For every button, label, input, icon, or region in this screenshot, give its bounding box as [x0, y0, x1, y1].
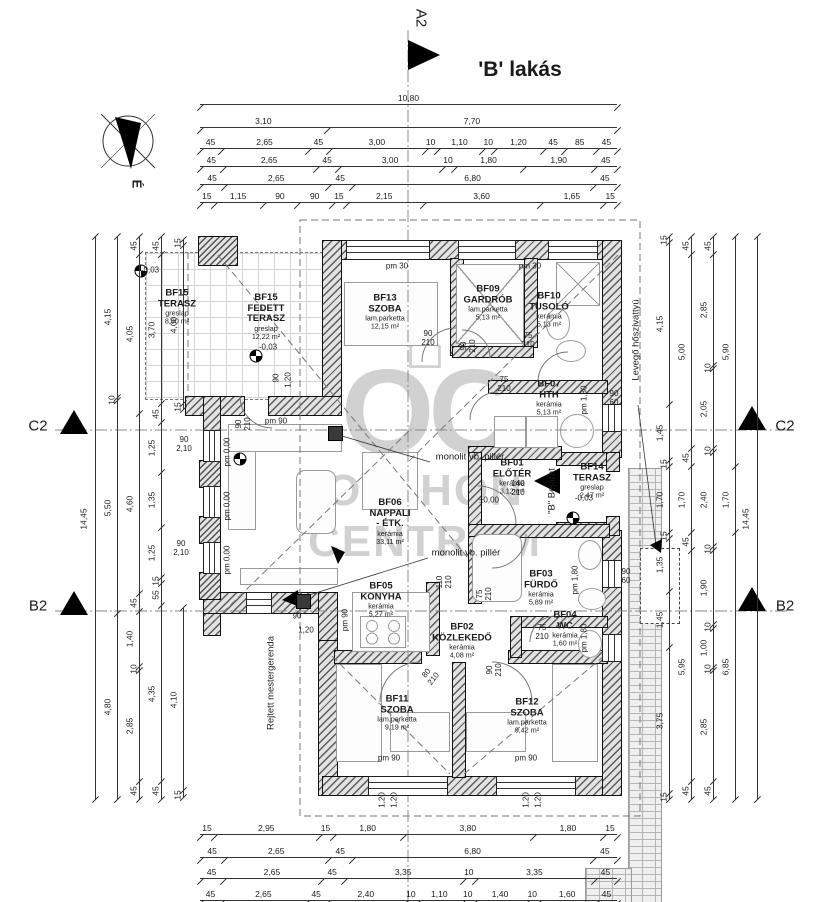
- room-label: BF04WCkerámia1,60 m²: [552, 610, 578, 647]
- dim-label: 2,65: [264, 867, 281, 877]
- room-label: BF13SZOBAlam.parketta12,15 m²: [365, 293, 405, 330]
- room-area: 1,60 m²: [552, 640, 578, 648]
- dim-label: 45: [601, 867, 610, 877]
- dim-segment: 1,45: [656, 592, 669, 649]
- dim-label: 7,70: [464, 116, 481, 126]
- annotation: 90 60: [610, 389, 619, 407]
- dimension-row: 3,107,70: [200, 115, 617, 128]
- dim-segment: 10: [463, 866, 476, 878]
- dim-label: 10: [426, 137, 435, 147]
- dim-label: 2,95: [258, 823, 275, 833]
- dim-segment: 2,65: [221, 888, 306, 900]
- annotation: pm 90: [340, 609, 349, 631]
- dim-segment: 5,95: [678, 551, 691, 783]
- window: [203, 486, 221, 518]
- dim-label: 45: [702, 241, 712, 250]
- dim-segment: 4,35: [148, 606, 161, 782]
- dim-label: 1,60: [559, 889, 576, 899]
- dim-segment: 45: [328, 172, 352, 184]
- window: [458, 240, 516, 260]
- dim-label: 14,45: [78, 508, 88, 529]
- dim-segment: 6,80: [352, 845, 592, 857]
- axis-marker-b2-right: B2: [776, 598, 794, 615]
- dim-segment: 45: [306, 888, 327, 900]
- dim-segment: 3,00: [338, 154, 441, 166]
- dim-label: 15: [334, 191, 343, 201]
- annotation: 75 210: [497, 375, 510, 393]
- dim-segment: 1,35: [656, 539, 669, 592]
- furniture-dryer: [526, 416, 558, 448]
- dim-segment: 45: [596, 136, 617, 148]
- annotation: 1,20: [521, 792, 530, 808]
- dim-label: 45: [128, 598, 138, 607]
- annotation: 1,20: [533, 792, 542, 808]
- dim-segment: 1,00: [700, 629, 713, 668]
- window: [203, 542, 221, 574]
- room-area: 5,89 m²: [524, 599, 558, 607]
- dim-label: 1,15: [230, 191, 247, 201]
- dim-segment: 1,25: [148, 528, 161, 578]
- annotation: 1,20: [298, 625, 314, 634]
- room-label: BF09GARDRÓBlam.parketta5,13 m²: [463, 284, 512, 321]
- annotation: -0,03: [141, 265, 159, 274]
- dim-label: 4,15: [103, 309, 113, 326]
- annotation: pm 1,80: [579, 386, 588, 415]
- dim-segment: 45: [200, 136, 221, 148]
- dim-segment: 2,40: [700, 453, 713, 547]
- dim-label: 2,85: [699, 302, 709, 319]
- dim-segment: 1,35: [148, 473, 161, 527]
- section-flag-a2: [408, 40, 440, 70]
- dim-label: 45: [128, 786, 138, 795]
- dim-segment: 4,15: [104, 237, 117, 398]
- dim-segment: 1,70: [722, 467, 735, 533]
- monolith-pillar: [328, 426, 343, 441]
- dim-label: 6,85: [721, 658, 731, 675]
- dimension-row: 452,65452,40101,10101,40101,6045: [200, 888, 617, 901]
- dim-segment: 45: [148, 237, 161, 255]
- room-area: 5,13 m²: [463, 314, 512, 322]
- note-label: monolit vb. pillér: [436, 453, 505, 464]
- dim-segment: 45: [308, 136, 329, 148]
- dim-segment: 15: [200, 822, 214, 834]
- dim-label: 15: [202, 823, 211, 833]
- dim-label: 45: [207, 846, 216, 856]
- window: [203, 430, 221, 462]
- dim-segment: 5,00: [678, 255, 691, 450]
- dim-label: 1,45: [655, 425, 665, 442]
- dim-label: 2,65: [255, 889, 272, 899]
- dimension-row: 452,65456,8045: [200, 172, 617, 185]
- dim-segment: 1,45: [656, 405, 669, 462]
- dim-label: 1,45: [655, 612, 665, 629]
- room-area: 8,00 m²: [158, 318, 196, 326]
- dim-label: 45: [600, 846, 609, 856]
- annotation: pm 90: [515, 753, 537, 762]
- dim-segment: 1,25: [148, 423, 161, 473]
- dim-label: 45: [207, 867, 216, 877]
- dimension-column: 154,151,45151,70151,351,453,7515: [656, 237, 670, 800]
- dim-segment: 10: [462, 888, 474, 900]
- annotation: pm 30: [519, 261, 541, 270]
- room-name: FEDETT TERASZ: [247, 304, 285, 325]
- dim-label: 45: [335, 173, 344, 183]
- dim-segment: 3,75: [656, 648, 669, 794]
- dimension-row: 452,65453,35103,3545: [200, 866, 617, 879]
- annotation: 1,20: [389, 792, 398, 808]
- dim-label: 10: [463, 889, 472, 899]
- annotation: pm 0,00: [222, 492, 231, 521]
- dim-label: 4,60: [125, 496, 135, 513]
- dimension-row: 10,80: [200, 92, 617, 105]
- dim-label: 2,05: [699, 401, 709, 418]
- dim-label: 14,45: [740, 508, 750, 529]
- dim-label: 2,40: [358, 889, 375, 899]
- dim-segment: 45: [678, 782, 691, 800]
- north-label: É: [130, 180, 145, 189]
- dim-label: 10: [484, 137, 493, 147]
- room-area: 33,11 m²: [370, 538, 411, 546]
- dim-label: 1,20: [510, 137, 527, 147]
- dim-segment: 45: [126, 782, 139, 800]
- window: [602, 634, 622, 662]
- dim-label: 10: [464, 867, 473, 877]
- dim-segment: 6,80: [352, 172, 592, 184]
- dim-segment: 3,35: [344, 866, 463, 878]
- dim-label: 4,35: [147, 686, 157, 703]
- furniture-sink: [578, 588, 606, 610]
- dim-label: 6,80: [464, 173, 481, 183]
- dim-label: 1,25: [147, 545, 157, 562]
- annotation: 1,20: [377, 792, 386, 808]
- annotation: -0,03: [575, 493, 593, 502]
- dim-segment: 2,15: [346, 190, 423, 202]
- room-area: 5,13 m²: [529, 321, 569, 329]
- dimension-column: 452,85102,05102,40101,90101,00102,8545: [700, 237, 714, 800]
- dim-segment: 3,00: [329, 136, 425, 148]
- dim-segment: 2,65: [223, 866, 320, 878]
- dim-label: 3,00: [382, 155, 399, 165]
- note-label: Rejtett mestergerenda: [267, 636, 278, 730]
- page-title: 'B' lakás: [478, 58, 562, 82]
- annotation: 75 210: [475, 587, 493, 600]
- room-area: 4,08 m²: [432, 652, 492, 660]
- dim-label: 2,40: [699, 492, 709, 509]
- dim-label: 1,40: [125, 631, 135, 648]
- annotation: 80 210: [419, 665, 442, 687]
- dim-label: 1,40: [492, 889, 509, 899]
- dim-segment: 45: [200, 866, 223, 878]
- axis-marker-b2-left: B2: [29, 598, 47, 615]
- room-area: 12,15 m²: [365, 323, 405, 331]
- dim-label: 1,65: [564, 191, 581, 201]
- dim-segment: 14,45: [82, 237, 95, 800]
- dim-segment: 4,10: [170, 608, 183, 791]
- dim-label: 10: [406, 889, 415, 899]
- dim-label: 1,70: [721, 492, 731, 509]
- wall: [510, 616, 522, 658]
- axis-marker-a2: A2: [413, 9, 430, 27]
- dim-segment: 45: [543, 136, 564, 148]
- dim-label: 1,25: [147, 440, 157, 457]
- room-label: BF15FEDETT TERASZgreslap12,22 m²: [247, 293, 285, 341]
- dimension-column: 455,00451,70455,9545: [678, 237, 692, 800]
- room-area: 5,27 m²: [360, 611, 401, 619]
- dim-segment: 2,95: [214, 822, 319, 834]
- room-label: BF12SZOBAlam.parketta9,42 m²: [507, 697, 547, 734]
- dim-label: 1,10: [431, 889, 448, 899]
- dim-label: 1,35: [655, 557, 665, 574]
- dim-label: 1,90: [550, 155, 567, 165]
- dim-segment: 1,20: [494, 136, 542, 148]
- dim-segment: 90: [297, 190, 332, 202]
- dim-label: 45: [680, 537, 690, 546]
- annotation: 90 210: [234, 417, 252, 430]
- dim-label: 5,50: [103, 500, 113, 517]
- dim-label: 45: [311, 889, 320, 899]
- dim-label: 1,00: [699, 640, 709, 657]
- dim-segment: 45: [316, 154, 339, 166]
- dim-segment: 15: [603, 822, 617, 834]
- dim-segment: 15: [332, 190, 346, 202]
- compass-icon: [101, 114, 155, 169]
- wall: [452, 662, 466, 778]
- annotation: pm 0,00: [222, 438, 231, 467]
- wall: [334, 650, 422, 664]
- dim-label: 3,70: [147, 322, 157, 339]
- dim-label: 45: [335, 846, 344, 856]
- dim-segment: 45: [678, 237, 691, 255]
- dim-segment: 90: [263, 190, 298, 202]
- furniture-washer: [494, 416, 526, 448]
- dimension-column: 4,15105,504,80: [104, 237, 118, 800]
- dim-segment: 45: [593, 845, 617, 857]
- pier: [199, 572, 221, 600]
- dim-label: 45: [600, 173, 609, 183]
- dim-label: 45: [150, 241, 160, 250]
- dim-label: 4,80: [103, 699, 113, 716]
- dim-segment: 3,35: [475, 866, 594, 878]
- dim-segment: 1,80: [533, 822, 603, 834]
- dim-label: 10,80: [398, 93, 419, 103]
- furniture-boiler: [560, 414, 594, 448]
- dim-segment: 2,65: [223, 154, 316, 166]
- furniture-coffee-table: [296, 470, 336, 534]
- dim-label: 55: [150, 590, 160, 599]
- annotation: 1,20: [283, 372, 292, 388]
- dim-segment: 2,65: [224, 845, 328, 857]
- furniture-bed: [336, 664, 382, 762]
- dim-segment: 15: [656, 794, 669, 800]
- dim-label: 45: [602, 137, 611, 147]
- dimension-row: 452,65456,8045: [200, 845, 617, 858]
- dim-segment: 2,40: [327, 888, 405, 900]
- dim-label: 3,35: [526, 867, 543, 877]
- dimension-row: 151,159090152,153,601,6515: [200, 190, 617, 203]
- dim-label: 85: [575, 137, 584, 147]
- room-name: NAPPALI - ÉTK.: [370, 509, 411, 530]
- dim-segment: 45: [700, 782, 713, 800]
- dim-label: 1,80: [560, 823, 577, 833]
- annotation: ±0,00: [479, 495, 499, 504]
- annotation: 90 2,10: [173, 539, 189, 557]
- dim-label: 45: [602, 889, 611, 899]
- dim-label: 3,35: [395, 867, 412, 877]
- room-area: 9,42 m²: [507, 727, 547, 735]
- dim-label: 3,10: [255, 116, 272, 126]
- dim-segment: 1,90: [700, 551, 713, 625]
- dim-segment: 45: [200, 845, 224, 857]
- dim-segment: 10: [526, 888, 538, 900]
- dim-segment: 45: [700, 237, 713, 255]
- dim-label: 45: [150, 409, 160, 418]
- dim-segment: 45: [200, 172, 224, 184]
- dim-segment: 45: [321, 866, 344, 878]
- dim-label: 4,10: [169, 691, 179, 708]
- furniture-stove: [360, 616, 406, 648]
- dim-segment: 2,85: [126, 671, 139, 783]
- dimension-column: 5,901,706,85: [722, 237, 736, 800]
- dim-segment: 1,60: [538, 888, 596, 900]
- dim-label: 2,65: [268, 173, 285, 183]
- annotation: 90 60: [622, 567, 631, 585]
- dim-label: 15: [202, 191, 211, 201]
- room-area: 12,22 m²: [247, 333, 285, 341]
- room-area: 5,13 m²: [536, 409, 562, 417]
- dim-segment: 6,85: [722, 533, 735, 800]
- room-label: BF06NAPPALI - ÉTK.kerámia33,11 m²: [370, 498, 411, 546]
- wall: [322, 776, 622, 796]
- dim-segment: 45: [678, 449, 691, 467]
- dim-label: 1,80: [359, 823, 376, 833]
- dim-label: 45: [206, 137, 215, 147]
- dim-segment: 1,70: [656, 467, 669, 533]
- dim-label: 45: [150, 786, 160, 795]
- dim-segment: 2,85: [700, 255, 713, 366]
- dim-label: 45: [322, 155, 331, 165]
- dim-segment: 10: [405, 888, 417, 900]
- dimension-row: 452,65453,00101,801,9045: [200, 154, 617, 167]
- dimension-column: 14,45: [82, 237, 96, 800]
- annotation: pm 30: [386, 261, 408, 270]
- dim-label: 45: [206, 889, 215, 899]
- dim-label: 90: [275, 191, 284, 201]
- dim-segment: 1,10: [417, 888, 462, 900]
- room-label: BF03FÜRDŐkerámia5,89 m²: [524, 569, 558, 606]
- dim-segment: 45: [200, 154, 223, 166]
- dim-segment: 4,80: [104, 614, 117, 800]
- dim-segment: 4,60: [126, 414, 139, 594]
- floor-plan-canvas: ⌂ OC OTTHON CENTRUM 'B' lakás A2 C2 B2 C…: [0, 0, 838, 902]
- dim-segment: 15: [603, 190, 617, 202]
- dim-segment: 55: [148, 584, 161, 606]
- annotation: pm 0,00: [222, 546, 231, 575]
- dim-label: 5,90: [721, 344, 731, 361]
- dim-label: 5,00: [677, 344, 687, 361]
- dim-segment: 45: [328, 845, 352, 857]
- note-label: "B" Bejárat: [548, 468, 559, 514]
- dim-segment: 3,80: [403, 822, 533, 834]
- pier: [199, 516, 221, 544]
- dim-segment: 1,10: [437, 136, 483, 148]
- dim-label: 15: [605, 823, 614, 833]
- dim-segment: 45: [678, 533, 691, 551]
- dim-segment: 45: [200, 888, 221, 900]
- dim-label: 1,35: [147, 492, 157, 509]
- room-label: BF11SZOBAlam.parketta9,19 m²: [377, 694, 417, 731]
- dim-label: 45: [680, 453, 690, 462]
- annotation: 90: [293, 611, 302, 620]
- room-label: BF05KONYHAkerámia5,27 m²: [360, 581, 401, 618]
- dim-label: 15: [321, 823, 330, 833]
- dim-segment: 45: [126, 594, 139, 612]
- dim-segment: 15: [200, 190, 214, 202]
- room-area: 9,19 m²: [377, 724, 417, 732]
- window: [602, 404, 622, 432]
- dim-segment: 15: [319, 822, 333, 834]
- dimension-column: 4,1015: [170, 608, 184, 798]
- dim-segment: 3,60: [423, 190, 541, 202]
- annotation: -0,03: [259, 342, 277, 351]
- dimension-row: 452,65453,00101,10101,20458545: [200, 136, 617, 149]
- dim-label: 45: [680, 241, 690, 250]
- dim-segment: 45: [594, 866, 617, 878]
- dim-segment: 85: [564, 136, 596, 148]
- note-label: monolit vb. pillér: [432, 549, 501, 560]
- dimension-row: 152,95151,803,801,8015: [200, 822, 617, 835]
- dim-label: 3,75: [655, 713, 665, 730]
- dim-segment: 15: [170, 404, 183, 410]
- annotation: 90: [271, 374, 280, 383]
- dim-label: 3,60: [473, 191, 490, 201]
- window: [548, 240, 598, 260]
- dim-label: 3,00: [369, 137, 386, 147]
- dim-segment: 1,70: [678, 467, 691, 533]
- dim-label: 2,85: [125, 718, 135, 735]
- room-label: BF15TERASZgreslap8,00 m²: [158, 288, 196, 325]
- wall: [322, 240, 342, 402]
- dimension-column: 454,054,60451,40102,8545: [126, 237, 140, 800]
- dim-segment: 45: [126, 237, 139, 255]
- dim-label: 45: [548, 137, 557, 147]
- wall: [268, 396, 342, 416]
- dim-label: 45: [314, 137, 323, 147]
- dim-label: 1,70: [655, 492, 665, 509]
- monolith-pillar: [296, 594, 311, 609]
- dim-label: 2,65: [261, 155, 278, 165]
- dim-label: 4,15: [655, 315, 665, 332]
- dim-label: 2,15: [376, 191, 393, 201]
- dim-segment: 7,70: [327, 115, 617, 127]
- room-label: BF10TUSOLÓkerámia5,13 m²: [529, 291, 569, 328]
- dim-label: 1,10: [451, 137, 468, 147]
- dim-label: 45: [702, 787, 712, 796]
- annotation: 110 210: [435, 575, 453, 588]
- dim-label: 2,85: [699, 719, 709, 736]
- window: [346, 240, 430, 260]
- annotation: 90 2,10: [176, 435, 192, 453]
- annotation: 75 210: [535, 623, 548, 641]
- dim-segment: 45: [594, 154, 617, 166]
- dim-segment: 45: [148, 404, 161, 422]
- annotation: pm 90: [265, 416, 287, 425]
- dim-segment: 15: [170, 791, 183, 798]
- dim-segment: 4,15: [656, 243, 669, 405]
- window: [602, 560, 622, 588]
- dim-label: 5,95: [677, 658, 687, 675]
- dimension-column: 14,45: [744, 237, 758, 800]
- dim-label: 45: [601, 155, 610, 165]
